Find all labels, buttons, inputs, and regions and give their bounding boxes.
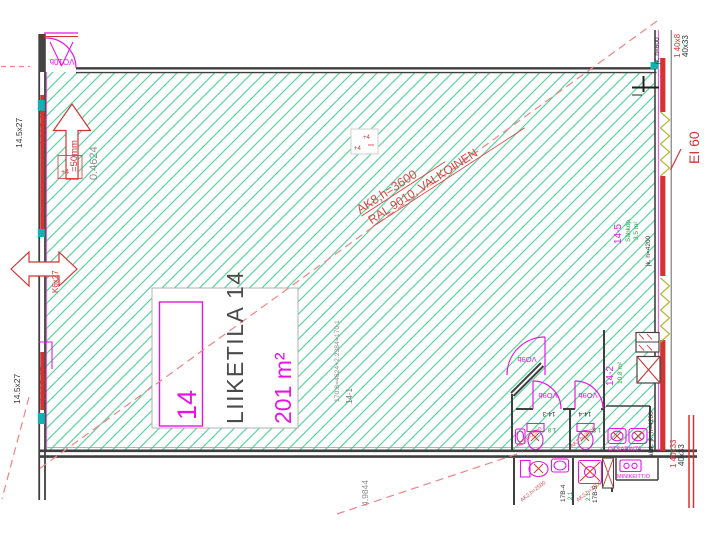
top-wall (76, 68, 657, 72)
room-area-label: 2.1 (586, 492, 592, 501)
wall-joint-marker (38, 413, 45, 424)
corner-post (38, 34, 46, 72)
insulation-zigzag (661, 112, 670, 176)
ei60-leader (671, 149, 682, 170)
window-size-label: 14.5x27 (12, 373, 22, 404)
room-name: LIIKETILA 14 (222, 270, 248, 424)
room-ref-label: 17B-4 (560, 484, 567, 502)
shaft-box (636, 333, 659, 353)
right-wall-red-segment (660, 176, 665, 276)
arrow-note-label: =50mm (69, 140, 80, 172)
fire-rating-label: EI 60 (686, 131, 702, 164)
room-area: 201 m² (270, 352, 296, 424)
window-size-label: 40x33 (677, 444, 686, 466)
note-label: jk, h=4200 (645, 235, 652, 267)
dimension-label: 4.9844 (360, 480, 370, 506)
room-area-label: 2.1 (568, 491, 574, 500)
right-wall (655, 30, 694, 508)
room-ref-label: 14-1 (345, 387, 354, 404)
level-label: +4 (61, 169, 69, 176)
level-label: +4 (363, 135, 371, 141)
room-name-label: Sähköp. (625, 218, 632, 242)
room-ref-label: 14-5 (613, 224, 624, 244)
window-type-label: 1 14.5x27 (39, 109, 48, 145)
wall-joint-marker (38, 100, 45, 111)
door-label: VO9b (517, 355, 536, 364)
room-ref-label: 14-3 (542, 410, 555, 417)
door-label: VO9b (538, 391, 557, 400)
room-number: 14 (172, 390, 202, 420)
kitchenette-fixture (620, 460, 641, 472)
fixture-x-box (603, 458, 614, 488)
right-wall-red-segment (660, 420, 665, 451)
shaft-x-box (637, 357, 660, 384)
window-size-label: 40x33 (681, 35, 690, 57)
calc-note: 170.8=4624+2.2384=170.1 (334, 320, 341, 402)
ceiling-note-small: AK2,h=2500 (520, 480, 548, 503)
room-area-label: 1.8 (547, 426, 556, 432)
level-label: +4 (354, 146, 362, 152)
door-label: VO9b (578, 391, 597, 400)
insulation-zigzag (661, 278, 670, 342)
wall-joint-marker (38, 229, 45, 237)
toilet-icon (521, 461, 549, 478)
window-size-label: 14.5x27 (14, 117, 24, 148)
surface-label: OTSAPINTA (608, 447, 642, 453)
sink-icon (552, 459, 569, 472)
window-type-label: 1 14.5x27 (39, 366, 48, 402)
kitchenette-label: MINIKEITTIÖ (617, 473, 651, 480)
floor-plan-drawing: 14.5x27 1 14.5x27 14.5x27 1 14.5x27 K6x2… (0, 0, 710, 533)
right-wall-red-segment (660, 340, 665, 420)
note-label: alak. jk, h=4200 (648, 411, 655, 457)
construction-line (2, 397, 29, 499)
note-label: jk, h=600 (654, 37, 661, 65)
room-ref-label: 14-4 (578, 410, 591, 417)
door-label: VO10b (49, 57, 74, 66)
room-area-label: 10.8 m² (617, 361, 624, 384)
window-type-label: K6x27 (51, 270, 60, 293)
room-ref-label: 14-2 (605, 366, 616, 386)
dimension-label: 0.4624 (88, 146, 100, 180)
room-area-label: 3.5 m² (633, 221, 640, 240)
room-ref-label: 17B-5 (592, 485, 599, 503)
right-wall-red-segment (660, 58, 665, 112)
